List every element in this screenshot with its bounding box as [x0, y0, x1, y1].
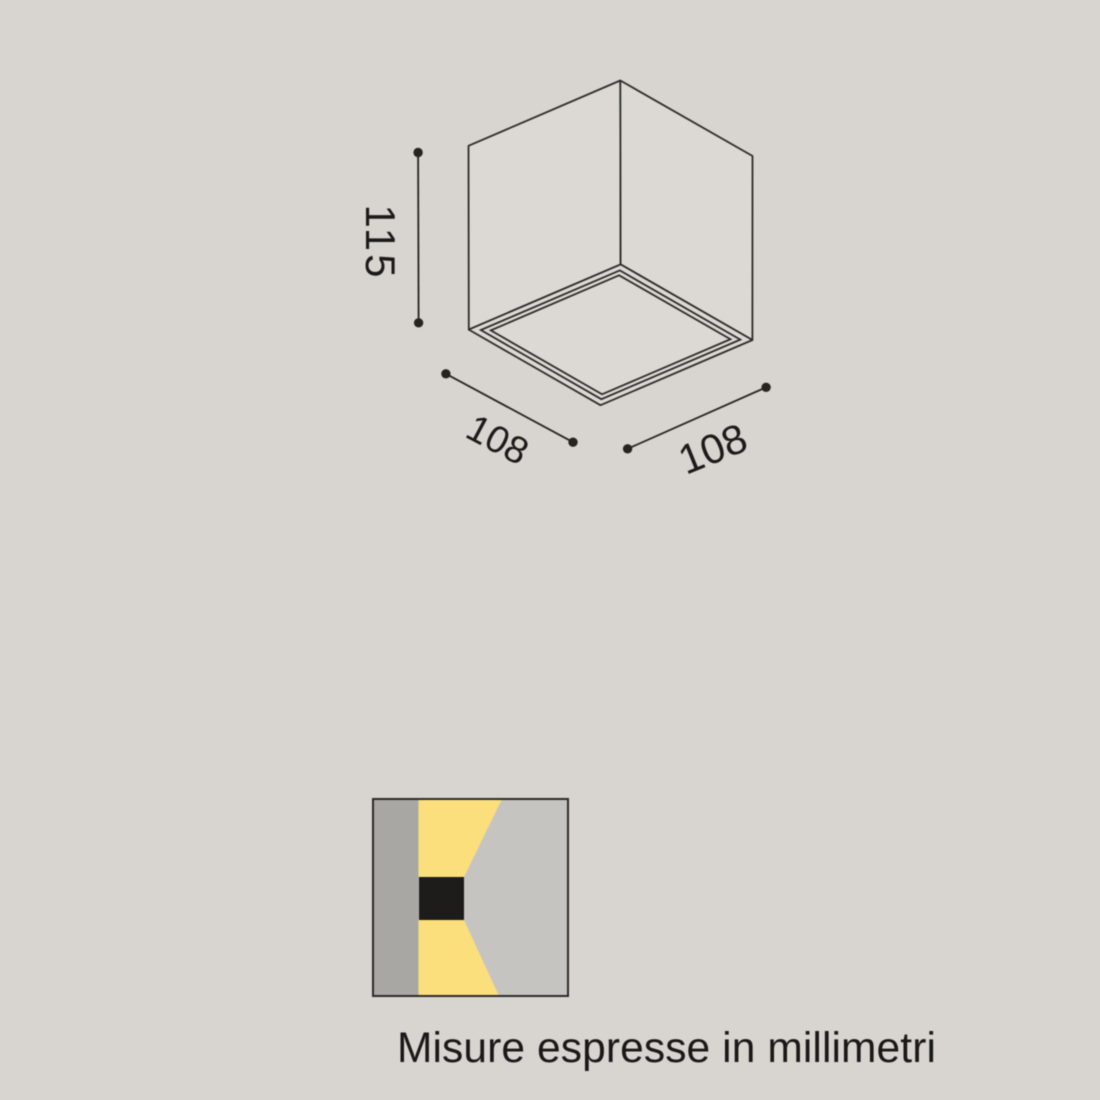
svg-text:Misure espresse in millimetri: Misure espresse in millimetri: [397, 1025, 936, 1072]
svg-text:115: 115: [357, 205, 404, 281]
